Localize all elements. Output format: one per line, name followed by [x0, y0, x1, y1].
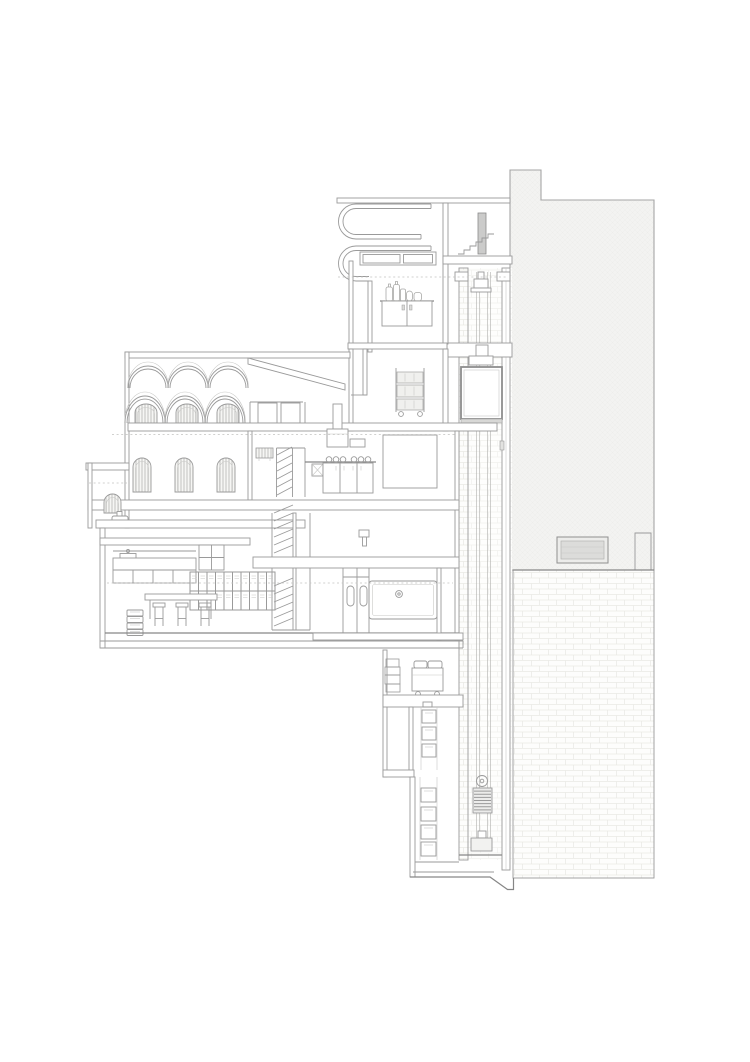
car-sill: [461, 419, 502, 423]
storeroom-right-wall: [443, 349, 448, 431]
architectural-section-drawing: [0, 0, 750, 1062]
elevator-car: [461, 367, 502, 419]
hood-flue: [333, 404, 342, 429]
basement-left-wall: [100, 528, 105, 648]
range-hood: [327, 429, 348, 447]
roof-vent: [135, 404, 157, 423]
pot-knob: [117, 512, 122, 517]
neighbor-building-block: [510, 170, 654, 570]
main-floor-slab: [88, 500, 459, 510]
bathroom-floor-slab: [313, 633, 463, 640]
stair-room-slab: [443, 256, 512, 264]
vault-room-right-wall: [248, 431, 252, 500]
hoist-machine-base: [471, 288, 491, 292]
shaft-head-bracket-left: [455, 272, 468, 281]
roof-vent: [176, 404, 198, 423]
roof-slab: [337, 198, 510, 203]
trolley-shelf: [397, 399, 423, 410]
piston-unit: [476, 345, 488, 356]
upper-floor-slab: [128, 423, 497, 431]
mid-landing-slab: [253, 557, 459, 568]
storage-step-slab: [383, 770, 414, 777]
wall-recess-inner: [561, 541, 604, 559]
wheeled-cart: [412, 668, 443, 691]
arched-windows: [133, 458, 235, 492]
trolley-shelf: [397, 372, 423, 383]
wall-sink-pedestal: [363, 537, 367, 546]
landing-door-jamb: [500, 441, 504, 450]
hood-side-box: [350, 439, 365, 447]
table-top: [145, 594, 217, 600]
car-crosshead: [469, 356, 493, 365]
base-cabinets: [323, 463, 373, 493]
hoist-machine-body: [474, 279, 488, 288]
annex-floor-slab: [96, 520, 305, 528]
roof-vent: [217, 404, 239, 423]
section-drawing-svg: [0, 0, 750, 1062]
pit-left-wall: [410, 777, 415, 877]
shelf-trolley: [397, 372, 423, 410]
counter-handle: [402, 305, 405, 310]
building-mass-outline: [510, 170, 654, 570]
buffer-stem: [478, 831, 486, 838]
shaft-access-door: [478, 213, 486, 254]
wing-roof-band: [125, 352, 350, 358]
storage-inner-wall: [409, 707, 413, 777]
attic-partition-wall: [443, 203, 448, 344]
annex-left-wall: [88, 463, 92, 528]
buffer-body: [471, 838, 492, 851]
counterweight: [473, 788, 492, 813]
pantry-left-wall: [349, 261, 353, 345]
attic-left-wall: [368, 281, 372, 352]
trolley-shelf: [397, 385, 423, 397]
stair-center-post: [293, 513, 296, 630]
annex-window: [104, 494, 121, 513]
wall-sink-basin: [359, 530, 369, 537]
counter-handle: [410, 305, 413, 310]
brick-wall-face: [513, 570, 654, 878]
roof-vents: [135, 404, 239, 423]
storeroom-left-wall: [349, 349, 353, 431]
radiator: [256, 448, 273, 458]
shaft-head-bracket-right: [497, 272, 510, 281]
locker-room-ceiling: [100, 538, 250, 545]
shaft-side-wall: [455, 431, 459, 640]
bathroom-right-wall: [437, 568, 441, 640]
storeroom-ceiling-slab: [348, 343, 447, 349]
storeroom-inner-wall: [363, 349, 367, 395]
hoist-machine-top: [478, 272, 484, 279]
brick-party-wall: [513, 570, 654, 878]
kitchenette-counter: [113, 558, 196, 583]
